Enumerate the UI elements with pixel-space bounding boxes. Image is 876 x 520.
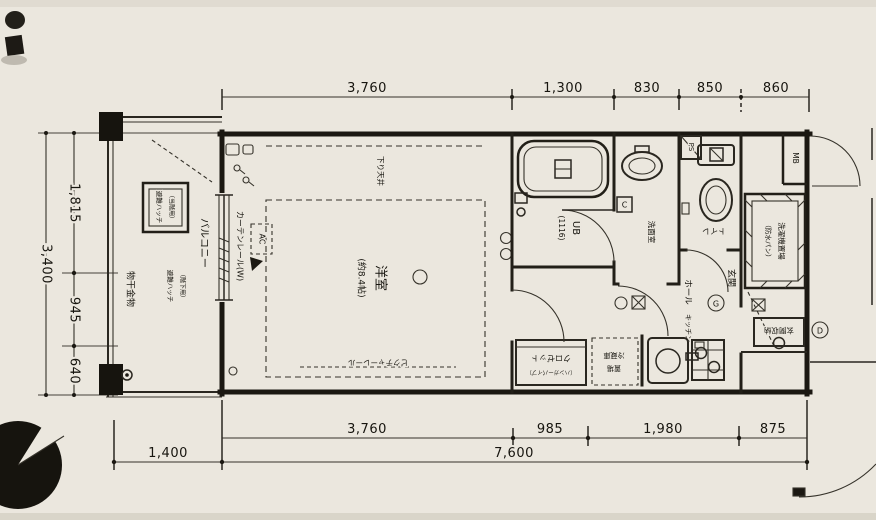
evac-hatch-below-label: 避難ハッチ xyxy=(166,270,175,303)
dim-bottom-3760: 3,760 xyxy=(347,422,387,437)
dim-top-3760: 3,760 xyxy=(347,81,387,96)
entrance-door-leaf xyxy=(793,488,805,496)
door-mark-label: D xyxy=(817,327,823,336)
outlet-box-label: C xyxy=(622,201,628,210)
balcony-post-top xyxy=(99,112,123,141)
curtain-rail-label: カーテンレール(W) xyxy=(236,211,245,281)
washer-space-note: （防水パン） xyxy=(764,221,773,260)
dropped-ceiling-label: 下り天井 xyxy=(376,156,386,186)
dim-left-945: 945 xyxy=(67,297,82,323)
dim-top-830: 830 xyxy=(634,81,660,96)
scan-edge-top xyxy=(0,0,876,7)
fridge-space-label-2: 置場 xyxy=(607,364,621,373)
western-room-size-label: (約8.4帖) xyxy=(356,258,368,297)
western-room-label: 洋室 xyxy=(373,265,389,291)
picture-rail-label: ピクチャーレール xyxy=(348,358,408,367)
unit-bath-size-label: (1116) xyxy=(557,216,566,241)
washroom-label: 洗面室 xyxy=(647,221,657,244)
dim-bottom-985: 985 xyxy=(537,422,563,437)
meter-box-label: MB xyxy=(791,152,800,164)
balcony-label: バルコニー xyxy=(198,218,210,268)
dim-left-640: 640 xyxy=(67,358,82,384)
entrance-storage-label: 玄関収納 xyxy=(764,326,794,336)
dim-bottom-1980: 1,980 xyxy=(643,422,683,437)
balcony-window xyxy=(215,193,233,302)
laundry-bracket-label: 物干金物 xyxy=(125,271,137,307)
dim-bottom-875: 875 xyxy=(760,422,786,437)
ac-label: AC xyxy=(258,234,267,245)
washer-space-label: 洗濯機置場 xyxy=(777,222,787,260)
dim-left-1815: 1,815 xyxy=(67,183,82,223)
unit-bath-label: UB xyxy=(570,221,581,235)
floor-plan-scan: 3,760 1,300 830 850 860 1,815 945 640 3,… xyxy=(0,0,876,520)
closet-label: クロゼット xyxy=(531,354,571,364)
dim-bottom-1400: 1,400 xyxy=(148,446,188,461)
scan-edge-bottom xyxy=(0,513,876,520)
closet-note: （ハンガーパイプ） xyxy=(526,369,575,377)
floor-plan-drawing: 3,760 1,300 830 850 860 1,815 945 640 3,… xyxy=(0,0,876,520)
dim-bottom-7600: 7,600 xyxy=(494,446,534,461)
dim-top-850: 850 xyxy=(697,81,723,96)
evac-hatch-below-note: （階下用） xyxy=(179,271,187,301)
fridge-space-label-1: 冷蔵庫 xyxy=(604,351,625,360)
pipe-space-label: PS xyxy=(687,143,695,152)
evac-hatch-note: （当階用） xyxy=(168,192,176,222)
gas-mark-label: G xyxy=(713,300,719,309)
hall-label: ホール xyxy=(683,279,693,305)
toilet-label: トイレ xyxy=(702,227,726,236)
dim-top-1300: 1,300 xyxy=(543,81,583,96)
dim-top-860: 860 xyxy=(763,81,789,96)
evac-hatch-label: 避難ハッチ xyxy=(155,191,164,224)
balcony-post-bottom xyxy=(99,364,123,395)
